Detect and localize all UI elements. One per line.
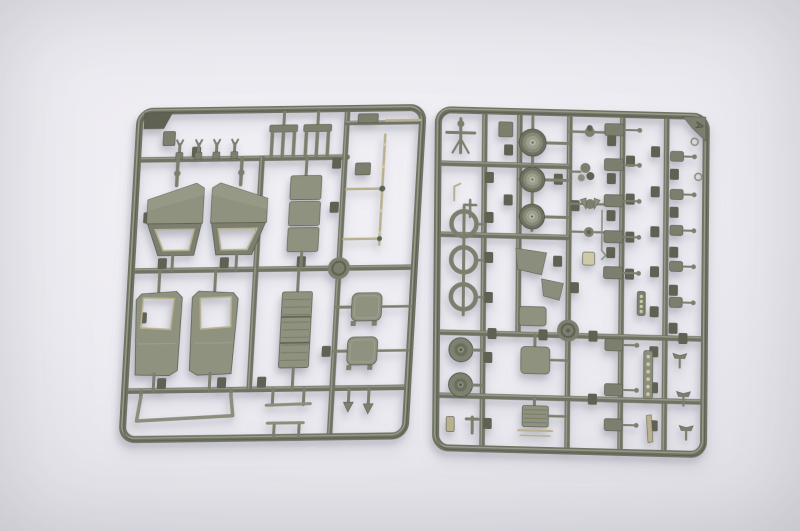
block-part: [288, 201, 320, 225]
small-part-row: [669, 297, 695, 308]
gate-stub: [332, 158, 342, 169]
hub-part: [448, 372, 472, 397]
gate-stub: [157, 378, 167, 389]
winged-part: [673, 353, 687, 367]
small-part-row: [670, 189, 696, 200]
runner-rail: [438, 162, 570, 167]
gate-stub: [257, 377, 267, 388]
10: [278, 292, 312, 368]
sprue-photo-canvas: A: [0, 0, 800, 531]
gate-stub: [651, 146, 660, 157]
gate-stub: [650, 266, 659, 277]
sprue-stem: [346, 189, 382, 190]
gate-stub: [670, 169, 679, 180]
small-part-row: [670, 225, 696, 236]
sprue-stem: [215, 270, 216, 291]
gate-stub: [650, 226, 659, 237]
thin-part: [602, 250, 606, 259]
long-bracket: [136, 395, 233, 421]
small-part-row: [604, 230, 641, 243]
sprue-stem: [153, 374, 154, 391]
runner-rail: [248, 157, 262, 390]
sprue-stem: [209, 373, 210, 390]
wheel-part: [519, 204, 544, 230]
3: [268, 111, 299, 158]
block-part: [358, 114, 379, 123]
gate-stub: [650, 306, 659, 317]
sprue-stem: [172, 256, 173, 271]
round-part: [580, 163, 590, 173]
gate-stub: [651, 186, 660, 197]
gate-stub: [484, 252, 493, 263]
sprue-right: A: [435, 108, 708, 456]
gate-stub: [217, 377, 227, 388]
block-part: [499, 122, 513, 137]
hook-part: [691, 138, 698, 145]
gate-stub: [321, 346, 331, 357]
door-top-left: [145, 183, 205, 256]
sprue-stem: [273, 423, 274, 437]
photo-of-model-kit-sprues: A: [0, 0, 800, 531]
gate-stub: [668, 323, 677, 334]
small-part-row: [603, 266, 640, 279]
runner-tab: [144, 113, 173, 129]
sprue-left: [121, 106, 424, 441]
peg-part: [176, 140, 184, 159]
gate-stub: [571, 200, 580, 211]
gate-stub: [570, 282, 579, 293]
tan-part: [446, 416, 454, 431]
door-right: [188, 291, 239, 376]
sprue-stem: [520, 435, 550, 436]
block-part: [163, 131, 176, 145]
round-part: [377, 236, 382, 241]
sprue-stem: [306, 158, 307, 176]
round-part: [457, 120, 464, 127]
seat-back: [521, 346, 550, 374]
sprue-stem: [159, 271, 160, 292]
sprue-stem: [298, 423, 299, 437]
gate-stub: [678, 333, 687, 344]
round-part: [379, 186, 385, 192]
gate-stub: [588, 331, 597, 342]
sprue-stem: [301, 252, 302, 269]
hook-part: [695, 173, 702, 180]
winged-part: [679, 426, 693, 440]
gate-stub: [606, 247, 615, 258]
sprue-stem: [267, 423, 303, 424]
gate-stub: [329, 202, 339, 213]
small-part-row: [604, 194, 641, 207]
round-part: [585, 199, 595, 209]
round-part: [586, 172, 594, 180]
seat-part: [346, 337, 378, 370]
round-part: [238, 169, 245, 175]
sprue-stem: [303, 389, 304, 405]
small-part-row: [604, 158, 641, 171]
round-part: [578, 174, 585, 181]
gate-stub: [607, 173, 616, 184]
round-part: [327, 257, 350, 279]
gate-stub: [669, 285, 678, 296]
flat-part: [363, 404, 374, 414]
peg-part: [231, 140, 239, 159]
gate-stub: [669, 247, 678, 258]
gate-stub: [538, 329, 547, 340]
wedge-part: [541, 279, 563, 301]
block-part: [290, 175, 322, 199]
sprue-stem: [454, 184, 460, 187]
gate-stub: [606, 210, 615, 221]
gate-stub: [626, 194, 635, 205]
sprue-stem: [266, 404, 310, 406]
small-part-row: [605, 123, 642, 136]
sprue-stem: [236, 255, 237, 270]
round-part: [174, 170, 181, 176]
gate-stub: [553, 256, 562, 267]
5: [522, 405, 548, 427]
door-left: [132, 291, 183, 376]
sprue-stem: [272, 389, 273, 405]
hub-part: [449, 337, 473, 362]
sprue-stem: [297, 269, 298, 294]
small-part-row: [604, 384, 638, 397]
gate-stub: [607, 135, 616, 146]
gate-stub: [487, 328, 496, 339]
sprue-stem: [292, 368, 293, 389]
gate-stub: [669, 207, 678, 218]
small-part-row: [670, 261, 696, 272]
sprue-stem: [518, 430, 552, 431]
wheel-part: [520, 167, 545, 193]
peg-part: [213, 140, 221, 159]
gate-stub: [484, 212, 493, 223]
tan-square: [583, 252, 595, 265]
sprue-stem: [463, 207, 464, 315]
small-part-row: [670, 151, 696, 162]
gate-stub: [483, 418, 492, 429]
flat-part: [343, 402, 354, 412]
gate-stub: [484, 292, 493, 303]
block-part: [519, 306, 546, 326]
seat-part: [351, 293, 383, 326]
gate-stub: [219, 257, 229, 268]
gate-stub: [588, 394, 597, 405]
sprue-stem: [343, 239, 379, 240]
gate-stub: [504, 144, 513, 155]
small-part-row: [605, 339, 639, 352]
small-part-row: [604, 419, 638, 432]
gate-stub: [485, 172, 494, 183]
gate-stub: [157, 258, 167, 269]
3: [302, 110, 333, 157]
runner-rail: [124, 386, 407, 391]
tan-blade: [646, 415, 653, 443]
block-part: [287, 227, 319, 251]
gate-stub: [483, 352, 492, 363]
block-part: [355, 163, 371, 175]
wheel-part: [519, 129, 546, 157]
gate-stub: [504, 194, 513, 205]
